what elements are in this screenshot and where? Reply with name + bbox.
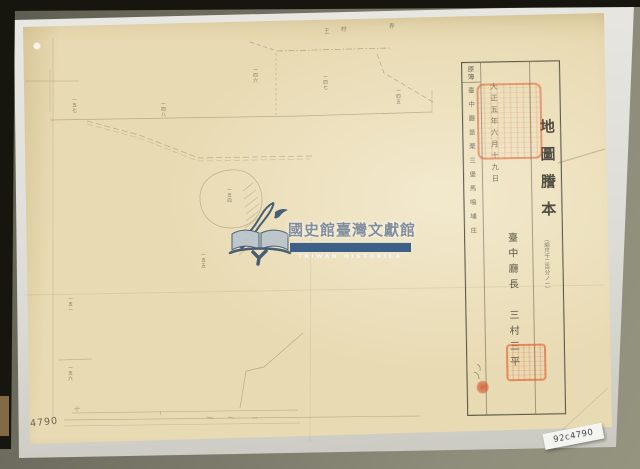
- archive-name-en: TAIWAN HISTORICA: [298, 254, 403, 260]
- archive-name-en-bar: TAIWAN HISTORICA: [290, 242, 411, 252]
- plot-number-label: 一五七: [71, 97, 76, 114]
- archive-name-zh: 國史館臺灣文獻館: [288, 219, 416, 240]
- scanner-bed: 一五七 一四八 一四六 一四七 一四五 一五四 一五五 一五一 一五六 王 村 …: [0, 0, 640, 469]
- map-bottom-line-a: [72, 410, 298, 413]
- book-swoosh: [230, 249, 290, 254]
- scale-note-text: （縮尺千二百分ノ一）: [542, 237, 549, 292]
- plot-number-label: 一五一: [67, 296, 72, 313]
- map-bottom-line-b: [64, 416, 420, 420]
- archive-watermark: 國史館臺灣文獻館 TAIWAN HISTORICA: [228, 202, 428, 266]
- open-book-left-page: [232, 230, 259, 250]
- boundary-name-char: 村: [341, 28, 347, 34]
- map-boundary-dashes-c: [377, 54, 433, 102]
- plot-number-label: 一四五: [395, 88, 400, 105]
- map-road-line-b: [87, 124, 310, 161]
- boundary-name-char: 王: [324, 30, 330, 36]
- map-boundary-dashes-a: [250, 42, 277, 51]
- y-mark: [253, 251, 266, 264]
- location-text: 臺中廳苗栗三堡馬鳴埔庄: [466, 87, 475, 241]
- swallow-icon: [274, 209, 288, 218]
- map-boundary-dashes-b: [277, 48, 390, 51]
- map-road-line-a: [87, 121, 312, 158]
- map-bottom-line-c: [64, 423, 300, 426]
- plot-number-label: 一四八: [160, 101, 165, 118]
- open-book-right-page: [261, 230, 288, 250]
- plot-number-label: 一五五: [200, 252, 205, 269]
- paper-crease-right: [558, 149, 605, 163]
- register-header-text: 原簿: [466, 66, 473, 81]
- certificate-header-line: [462, 82, 480, 83]
- taiwan-historica-logo-icon: [228, 202, 292, 266]
- plot-number-label: 一四七: [322, 74, 327, 91]
- paper-hole: [34, 43, 41, 50]
- map-path-lower: [240, 333, 303, 408]
- plot-number-label: 一五六: [67, 365, 72, 382]
- map-long-horizontal-line: [50, 112, 432, 120]
- boundary-name-char: 界: [389, 25, 395, 31]
- certificate-box: 原簿 臺中廳苗栗三堡馬鳴埔庄 大正五年六月十九日 臺中廳長 三村三平 地圖謄本 …: [461, 60, 566, 416]
- plot-number-label: 一四六: [252, 67, 257, 84]
- map-short-horizontal: [58, 359, 92, 360]
- official-registry-seal: [476, 83, 542, 160]
- governor-name-seal: [506, 344, 547, 382]
- small-round-seal: [477, 381, 489, 394]
